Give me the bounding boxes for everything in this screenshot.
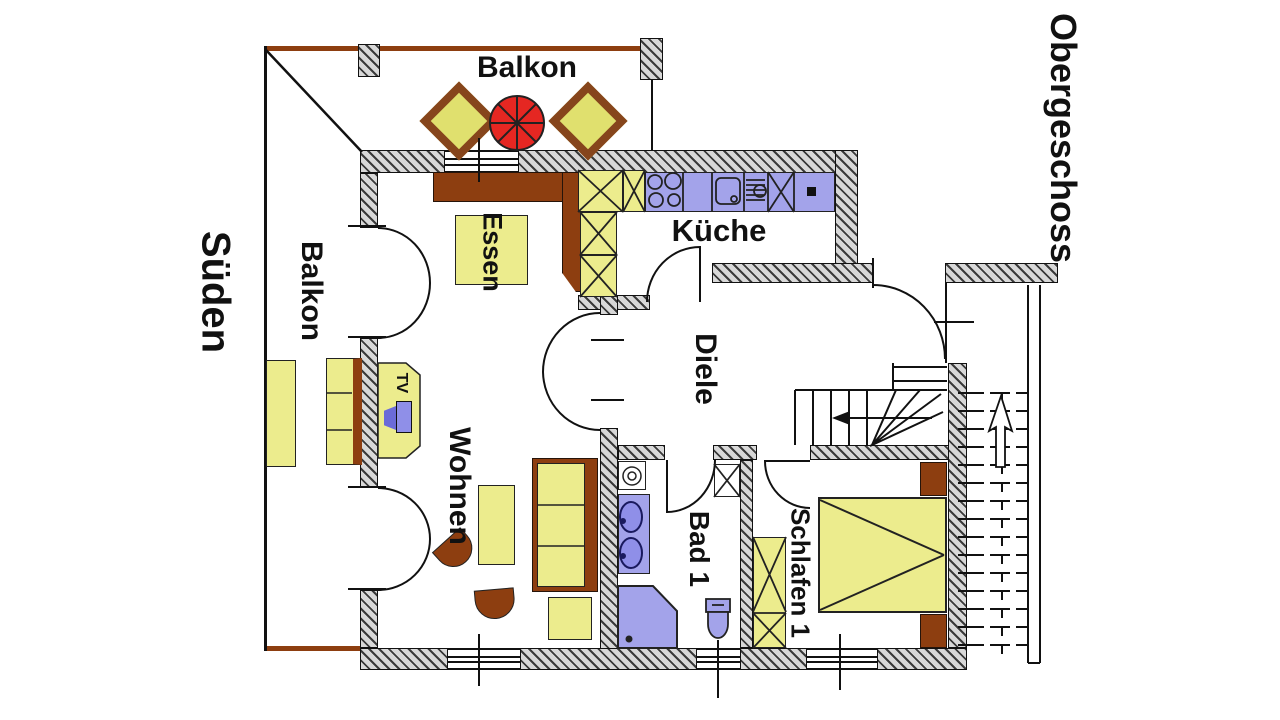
duct-shaft [714,464,740,497]
balcony-diagonal-edge [266,50,362,152]
wall [618,445,665,460]
balcony-bench [266,360,296,467]
kitchen-cabinet [578,170,623,212]
balcony-chair [548,81,627,160]
balcony-chair [419,81,498,160]
floor-label: Obergeschoss [1042,13,1084,263]
toilet [706,599,730,638]
room-label-dining: Essen [477,212,508,292]
tv-screen [396,401,412,433]
room-label-kitchen: Küche [672,213,767,249]
shower [618,586,677,648]
wall [600,428,618,650]
kitchen-cabinet [580,212,617,255]
room-label-balcony-top: Balkon [477,51,577,85]
wall [713,445,757,460]
interior-stairs [795,363,947,446]
double-sink-vanity [618,494,650,574]
room-label-bedroom: Schlafen 1 [785,508,816,638]
window [448,648,520,670]
wall [360,338,378,488]
kitchen-cabinet [580,255,617,297]
orientation-label: Süden [193,231,238,353]
counter-knob [807,187,816,196]
balcony-railing-top [264,46,656,51]
room-label-living: Wohnen [442,427,476,545]
kitchen-cabinet [623,170,645,212]
window [807,648,877,670]
wall [520,648,697,670]
wall [877,648,967,670]
wall [360,648,448,670]
room-label-hall: Diele [688,333,722,405]
room-label-bath: Bad 1 [683,511,715,587]
wall [810,445,967,460]
exterior-stairs [958,285,1040,663]
coffee-table [478,485,515,565]
wall [360,150,445,173]
wall [945,263,1058,283]
balcony-edge-left [264,46,267,651]
balcony-railing-bottom [264,646,362,651]
wardrobe [753,537,786,648]
parasol-table [489,95,545,151]
floor-plan: Süden Obergeschoss Balkon Balkon Essen K… [0,0,1280,720]
side-table [548,597,592,640]
wall [740,460,753,648]
wall [948,363,967,648]
balcony-pillar [358,44,380,77]
room-label-balcony-left: Balkon [294,241,328,341]
window [697,648,740,670]
wall [360,173,378,228]
armchair [474,587,516,620]
balcony-pillar [640,38,663,80]
nightstand [920,614,947,648]
wall [360,590,378,648]
wall [518,150,858,173]
wall [600,295,618,315]
tv-label: TV [392,373,410,393]
double-bed [818,497,947,613]
wall [712,263,873,283]
balcony-bench [326,358,362,465]
washing-machine [618,461,646,490]
wall [740,648,807,670]
nightstand [920,462,947,496]
sofa-cushions [537,463,585,587]
